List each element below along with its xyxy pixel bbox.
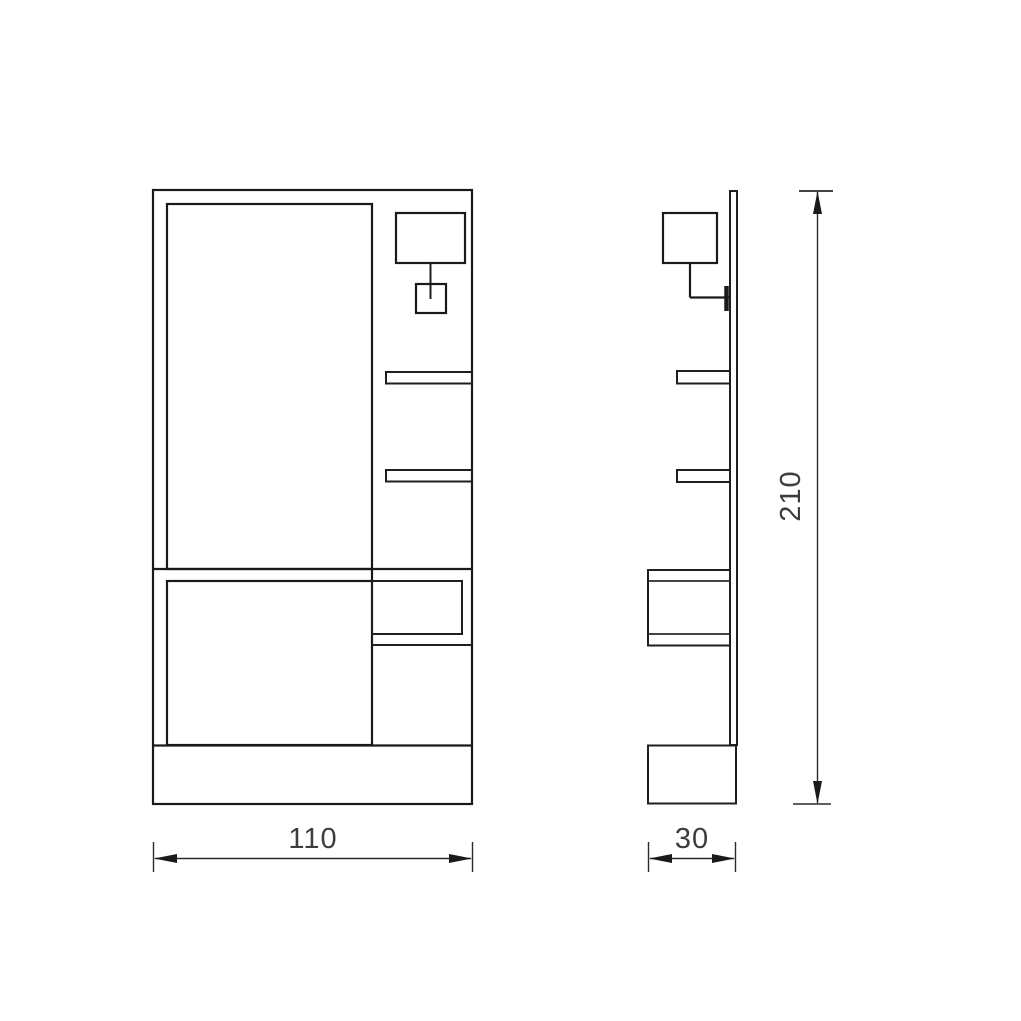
front-shelf-upper — [386, 372, 472, 384]
width-arrowhead-right — [449, 854, 472, 863]
side-plinth — [648, 746, 736, 804]
side-lamp-shade — [663, 213, 717, 263]
front-lower-door — [167, 581, 372, 745]
front-mirror-panel — [167, 204, 372, 569]
depth-arrowhead-left — [649, 854, 672, 863]
dimension-height: 210 — [775, 191, 833, 804]
dimension-width: 110 — [154, 823, 473, 872]
width-dimension-label: 110 — [288, 823, 337, 855]
front-view — [153, 190, 472, 804]
depth-arrowhead-right — [712, 854, 735, 863]
side-shelf-upper — [677, 371, 730, 384]
height-arrowhead-top — [813, 191, 822, 214]
side-view — [648, 191, 737, 804]
furniture-elevation-drawing: 110 30 210 — [0, 0, 1021, 1021]
depth-dimension-label: 30 — [675, 823, 709, 855]
dimension-depth: 30 — [649, 823, 736, 872]
front-drawer — [372, 581, 462, 634]
front-cabinet-outline — [153, 190, 472, 804]
width-arrowhead-left — [154, 854, 177, 863]
front-shelf-lower — [386, 470, 472, 482]
front-lamp-shade — [396, 213, 465, 263]
height-dimension-label: 210 — [775, 470, 807, 521]
technical-drawing-canvas: 110 30 210 — [0, 0, 1021, 1021]
height-arrowhead-bottom — [813, 781, 822, 804]
side-shelf-lower — [677, 470, 730, 482]
side-back-panel — [730, 191, 737, 745]
